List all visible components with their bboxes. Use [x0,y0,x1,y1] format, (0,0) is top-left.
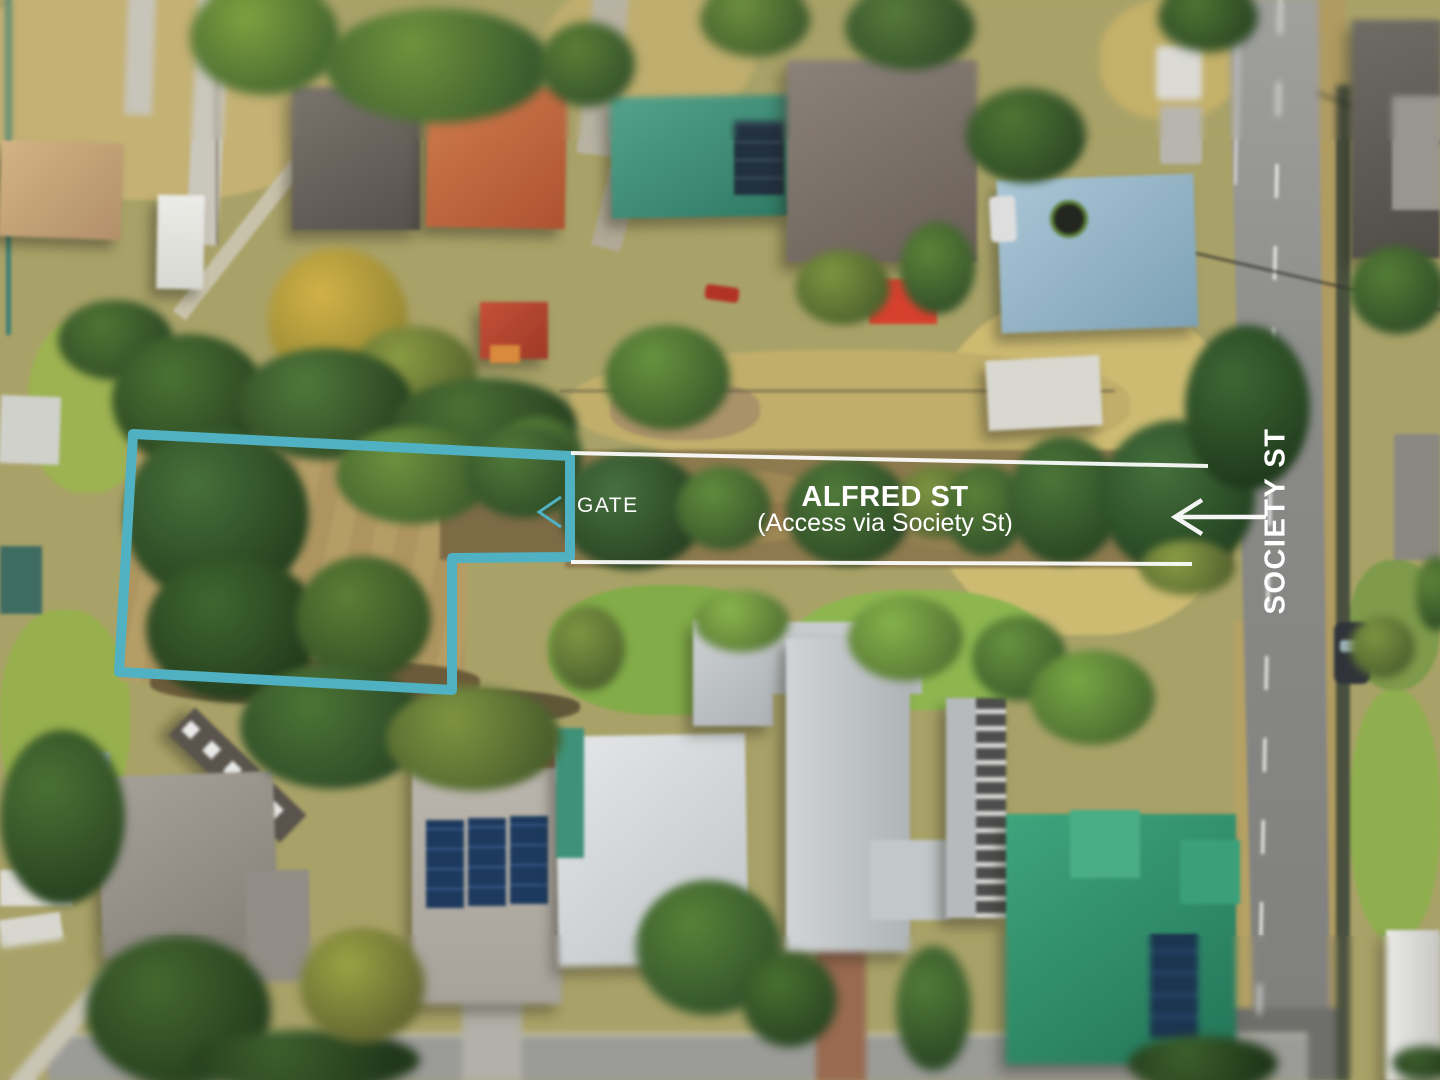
aerial-photograph: GATE ALFRED ST (Access via Society St) S… [0,0,1440,1080]
street-edge-line-top [571,453,1208,466]
alfred-st-annotation: ALFRED ST (Access via Society St) [685,484,1085,537]
property-boundary [119,434,570,690]
society-st-label: SOCIETY ST [1260,428,1293,615]
gate-label: GATE [577,494,639,518]
gate-marker-icon [539,497,561,527]
annotation-overlay [0,0,1440,1080]
direction-arrow-icon [1175,500,1266,534]
alfred-st-label: ALFRED ST [685,484,1085,510]
access-note-label: (Access via Society St) [685,510,1085,537]
street-edge-line-bottom [571,562,1192,564]
